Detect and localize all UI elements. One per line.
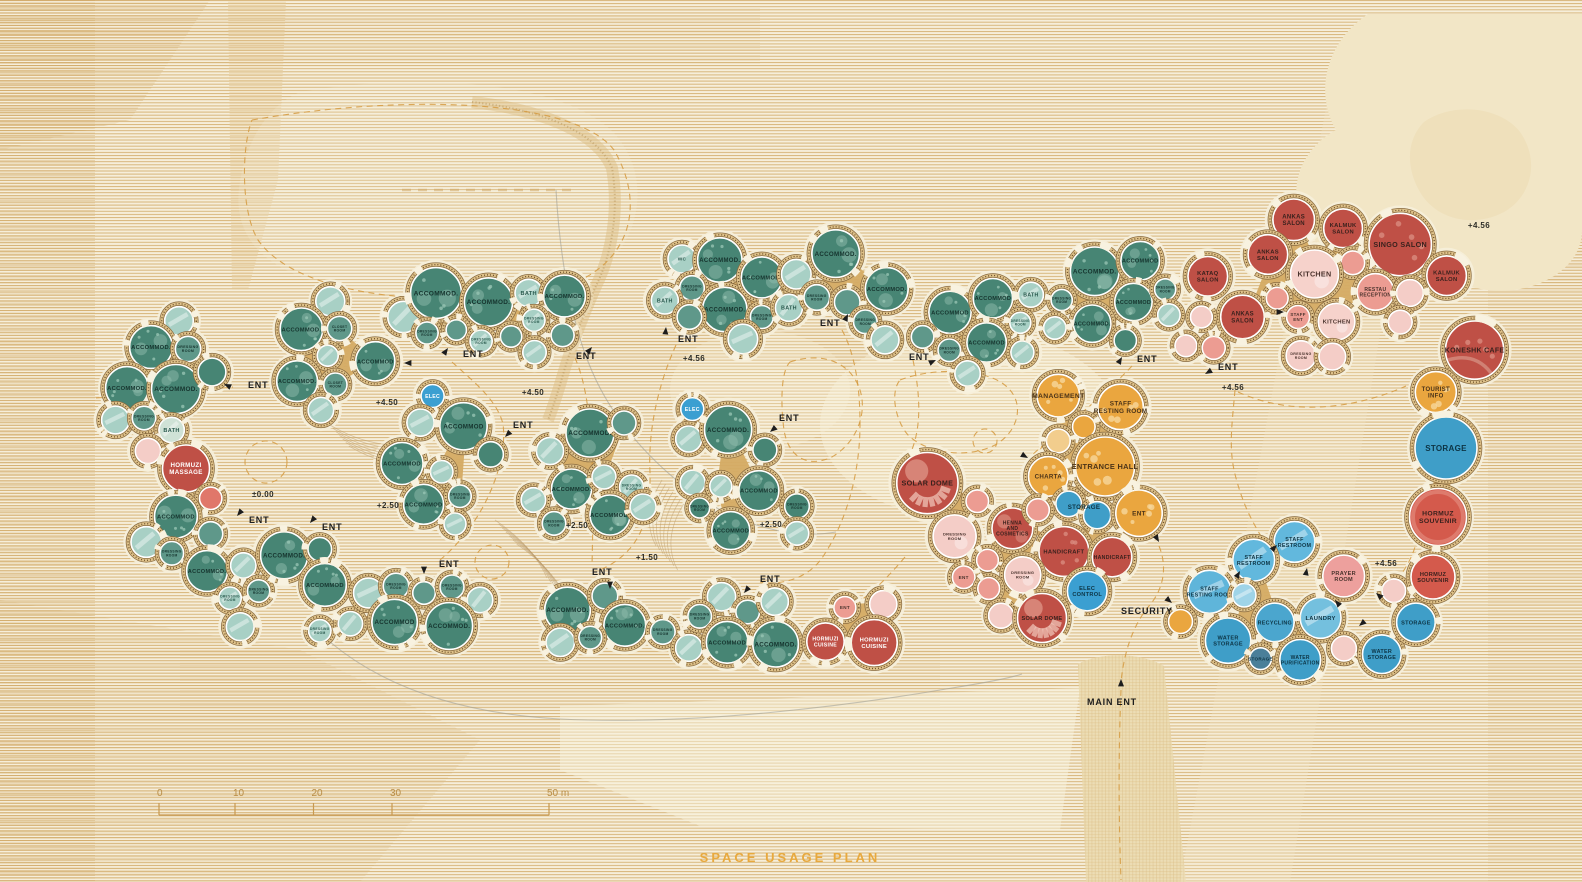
svg-text:+4.50: +4.50	[376, 398, 398, 407]
svg-text:ACCOMMOD.: ACCOMMOD.	[154, 386, 198, 393]
svg-text:ACCOMMOD.: ACCOMMOD.	[754, 641, 796, 648]
svg-text:ENT: ENT	[820, 318, 840, 328]
svg-text:ACCOMMOD.: ACCOMMOD.	[704, 308, 745, 314]
svg-text:HORMUZSOUVENIR: HORMUZSOUVENIR	[1419, 511, 1457, 526]
svg-text:ENTRANCE HALL: ENTRANCE HALL	[1072, 462, 1139, 471]
svg-text:ACCOMMOD: ACCOMMOD	[931, 310, 969, 316]
svg-text:ENT: ENT	[576, 351, 596, 361]
svg-text:ACCOMMOD: ACCOMMOD	[708, 640, 746, 646]
svg-text:SECURITY: SECURITY	[1121, 606, 1173, 616]
svg-text:ACCOMMOD.: ACCOMMOD.	[545, 294, 585, 300]
svg-text:ACCOMMOD: ACCOMMOD	[357, 359, 394, 365]
svg-text:ACCOMMOD: ACCOMMOD	[443, 424, 483, 431]
svg-text:KATAQSALON: KATAQSALON	[1197, 271, 1219, 284]
svg-text:ACCOMMOD.: ACCOMMOD.	[742, 275, 782, 281]
svg-text:ACCOMMOD.: ACCOMMOD.	[467, 299, 511, 306]
svg-text:ACCOMMOD.: ACCOMMOD.	[1073, 269, 1117, 276]
svg-text:+2.50: +2.50	[760, 520, 782, 529]
svg-text:+1.50: +1.50	[636, 553, 658, 562]
svg-text:SOLAR DOME: SOLAR DOME	[902, 479, 954, 488]
svg-text:ENT: ENT	[760, 574, 780, 584]
svg-text:ELEC: ELEC	[425, 394, 440, 400]
svg-text:WATERSTORAGE: WATERSTORAGE	[1367, 649, 1396, 661]
svg-text:ANKASSALON: ANKASSALON	[1231, 312, 1254, 325]
svg-text:ACCOMMOD.: ACCOMMOD.	[428, 623, 470, 630]
svg-text:30: 30	[390, 788, 402, 799]
svg-text:SOLAR DOME: SOLAR DOME	[1022, 616, 1063, 622]
svg-text:ACCOMMOD.: ACCOMMOD.	[414, 290, 459, 297]
svg-text:ACCOMMOD: ACCOMMOD	[306, 583, 344, 589]
svg-text:ENT: ENT	[248, 380, 268, 390]
svg-text:HORMUZSOUVENIR: HORMUZSOUVENIR	[1417, 572, 1449, 584]
svg-text:BATH: BATH	[657, 298, 673, 304]
svg-text:CHARTA: CHARTA	[1035, 474, 1063, 481]
svg-text:HANDICRAFT: HANDICRAFT	[1094, 555, 1132, 561]
svg-text:ENT: ENT	[439, 559, 459, 569]
svg-text:ACCOMMOD.: ACCOMMOD.	[552, 487, 592, 493]
svg-text:PRAYERROOM: PRAYERROOM	[1331, 571, 1356, 583]
svg-text:+4.56: +4.56	[683, 354, 705, 363]
svg-text:ACCOMMOD: ACCOMMOD	[1116, 300, 1151, 306]
svg-text:KONESHK CAFE: KONESHK CAFE	[1445, 348, 1505, 355]
svg-text:ENT: ENT	[513, 420, 533, 430]
svg-text:20: 20	[312, 788, 324, 799]
svg-text:+4.56: +4.56	[1375, 559, 1397, 568]
svg-text:ACCOMMOD.: ACCOMMOD.	[605, 623, 645, 629]
svg-text:ACCOMMOD.: ACCOMMOD.	[590, 513, 630, 519]
svg-text:ACCOMMOD.: ACCOMMOD.	[282, 327, 322, 333]
svg-text:ACCOMMOD.: ACCOMMOD.	[278, 379, 317, 385]
svg-text:KITCHEN: KITCHEN	[1323, 320, 1351, 326]
svg-text:BATH: BATH	[521, 291, 537, 297]
svg-text:STORAGE: STORAGE	[1425, 444, 1467, 453]
svg-text:RECYCLING: RECYCLING	[1258, 620, 1292, 626]
svg-text:ACCOMMOD.: ACCOMMOD.	[263, 553, 305, 560]
svg-text:WATERSTORAGE: WATERSTORAGE	[1213, 635, 1243, 647]
svg-text:ACCOMMOD: ACCOMMOD	[968, 341, 1005, 347]
svg-text:ACCOMMOD: ACCOMMOD	[405, 502, 443, 508]
svg-text:KITCHEN: KITCHEN	[1297, 270, 1331, 279]
svg-text:KALMUKSALON: KALMUKSALON	[1330, 223, 1357, 236]
svg-text:ACCOMMOD.: ACCOMMOD.	[188, 569, 227, 575]
svg-text:ACCOMMOD: ACCOMMOD	[383, 462, 421, 468]
svg-text:ENT: ENT	[678, 334, 698, 344]
svg-text:ACCOMMOD: ACCOMMOD	[374, 619, 414, 626]
svg-text:ACCOMMOD: ACCOMMOD	[740, 489, 778, 495]
svg-text:0: 0	[157, 788, 163, 799]
svg-text:STORAGE: STORAGE	[1068, 504, 1101, 511]
svg-text:ENT: ENT	[779, 413, 799, 423]
svg-text:HANDICRAFT: HANDICRAFT	[1043, 550, 1084, 556]
svg-text:+2.50: +2.50	[377, 501, 399, 510]
svg-text:BATH: BATH	[781, 306, 797, 312]
svg-text:ACCOMMOD.: ACCOMMOD.	[815, 251, 857, 258]
svg-text:ANKASSALON: ANKASSALON	[1282, 215, 1305, 228]
svg-text:ACCOMMOD: ACCOMMOD	[713, 529, 750, 535]
svg-text:+4.50: +4.50	[522, 388, 544, 397]
svg-text:HORMUZIMASSAGE: HORMUZIMASSAGE	[169, 462, 202, 476]
svg-text:ENT: ENT	[909, 352, 929, 362]
svg-text:BATH: BATH	[163, 428, 179, 434]
svg-text:ENT: ENT	[592, 567, 612, 577]
svg-text:ELEC: ELEC	[685, 407, 700, 413]
svg-text:ACCOMMOD: ACCOMMOD	[157, 515, 195, 521]
svg-text:BATH: BATH	[1023, 293, 1038, 299]
svg-text:ENT: ENT	[1137, 354, 1157, 364]
svg-text:ENT: ENT	[1132, 510, 1146, 517]
svg-text:SINGO SALON: SINGO SALON	[1373, 240, 1427, 249]
svg-text:ENT: ENT	[249, 515, 269, 525]
svg-text:ACCOMMOD.: ACCOMMOD.	[568, 430, 612, 437]
svg-text:+2.50: +2.50	[566, 521, 588, 530]
svg-text:ANKASSALON: ANKASSALON	[1257, 249, 1279, 261]
svg-text:HORMUZICUISINE: HORMUZICUISINE	[812, 637, 839, 649]
svg-text:KALMUKSALON: KALMUKSALON	[1433, 271, 1460, 284]
svg-text:ENT: ENT	[463, 349, 483, 359]
svg-text:10: 10	[233, 788, 245, 799]
svg-text:ACCOMMOD.: ACCOMMOD.	[699, 258, 740, 264]
svg-text:ENT: ENT	[1218, 362, 1238, 372]
svg-text:ACCOMMOD.: ACCOMMOD.	[1074, 322, 1111, 328]
svg-text:ACCOMMOD.: ACCOMMOD.	[107, 386, 147, 392]
svg-text:ACCOMMOD.: ACCOMMOD.	[131, 345, 171, 351]
svg-text:ACCOMMOD: ACCOMMOD	[1122, 259, 1159, 265]
svg-text:MAIN ENT: MAIN ENT	[1087, 697, 1137, 707]
svg-text:+4.56: +4.56	[1468, 221, 1490, 230]
svg-text:WC: WC	[678, 257, 687, 263]
svg-text:ENT: ENT	[840, 605, 850, 610]
svg-text:STORAGE: STORAGE	[1248, 656, 1273, 661]
svg-text:ENT: ENT	[959, 575, 969, 580]
svg-text:STORAGE: STORAGE	[1401, 620, 1431, 626]
svg-text:ACCOMMOD: ACCOMMOD	[975, 296, 1012, 302]
svg-text:ACCOMMOD.: ACCOMMOD.	[546, 607, 588, 614]
svg-text:ACCOMMOD.: ACCOMMOD.	[707, 427, 749, 434]
svg-text:ACCOMMOD.: ACCOMMOD.	[867, 287, 907, 293]
svg-text:SPACE USAGE PLAN: SPACE USAGE PLAN	[700, 850, 881, 865]
svg-text:50 m: 50 m	[547, 788, 569, 799]
svg-text:MANAGEMENT: MANAGEMENT	[1032, 393, 1085, 400]
svg-text:+4.56: +4.56	[1222, 383, 1244, 392]
svg-text:±0.00: ±0.00	[252, 490, 274, 499]
svg-text:ENT: ENT	[322, 522, 342, 532]
svg-text:HORMUZICUISINE: HORMUZICUISINE	[860, 637, 889, 650]
svg-text:LAUNDRY: LAUNDRY	[1305, 616, 1335, 622]
